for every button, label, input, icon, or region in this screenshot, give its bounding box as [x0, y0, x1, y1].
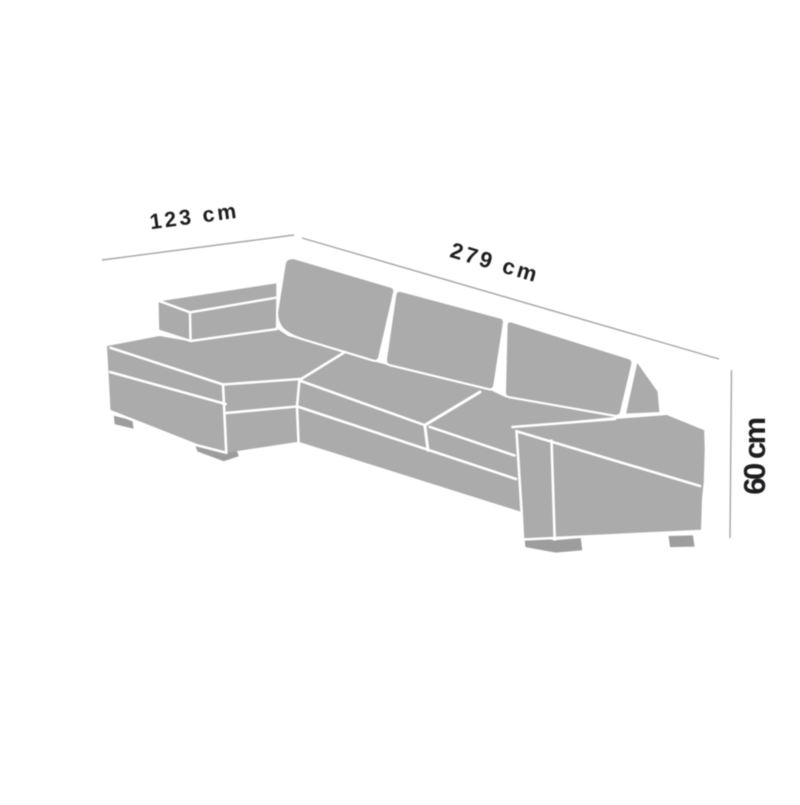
- svg-text:60 cm: 60 cm: [737, 418, 772, 494]
